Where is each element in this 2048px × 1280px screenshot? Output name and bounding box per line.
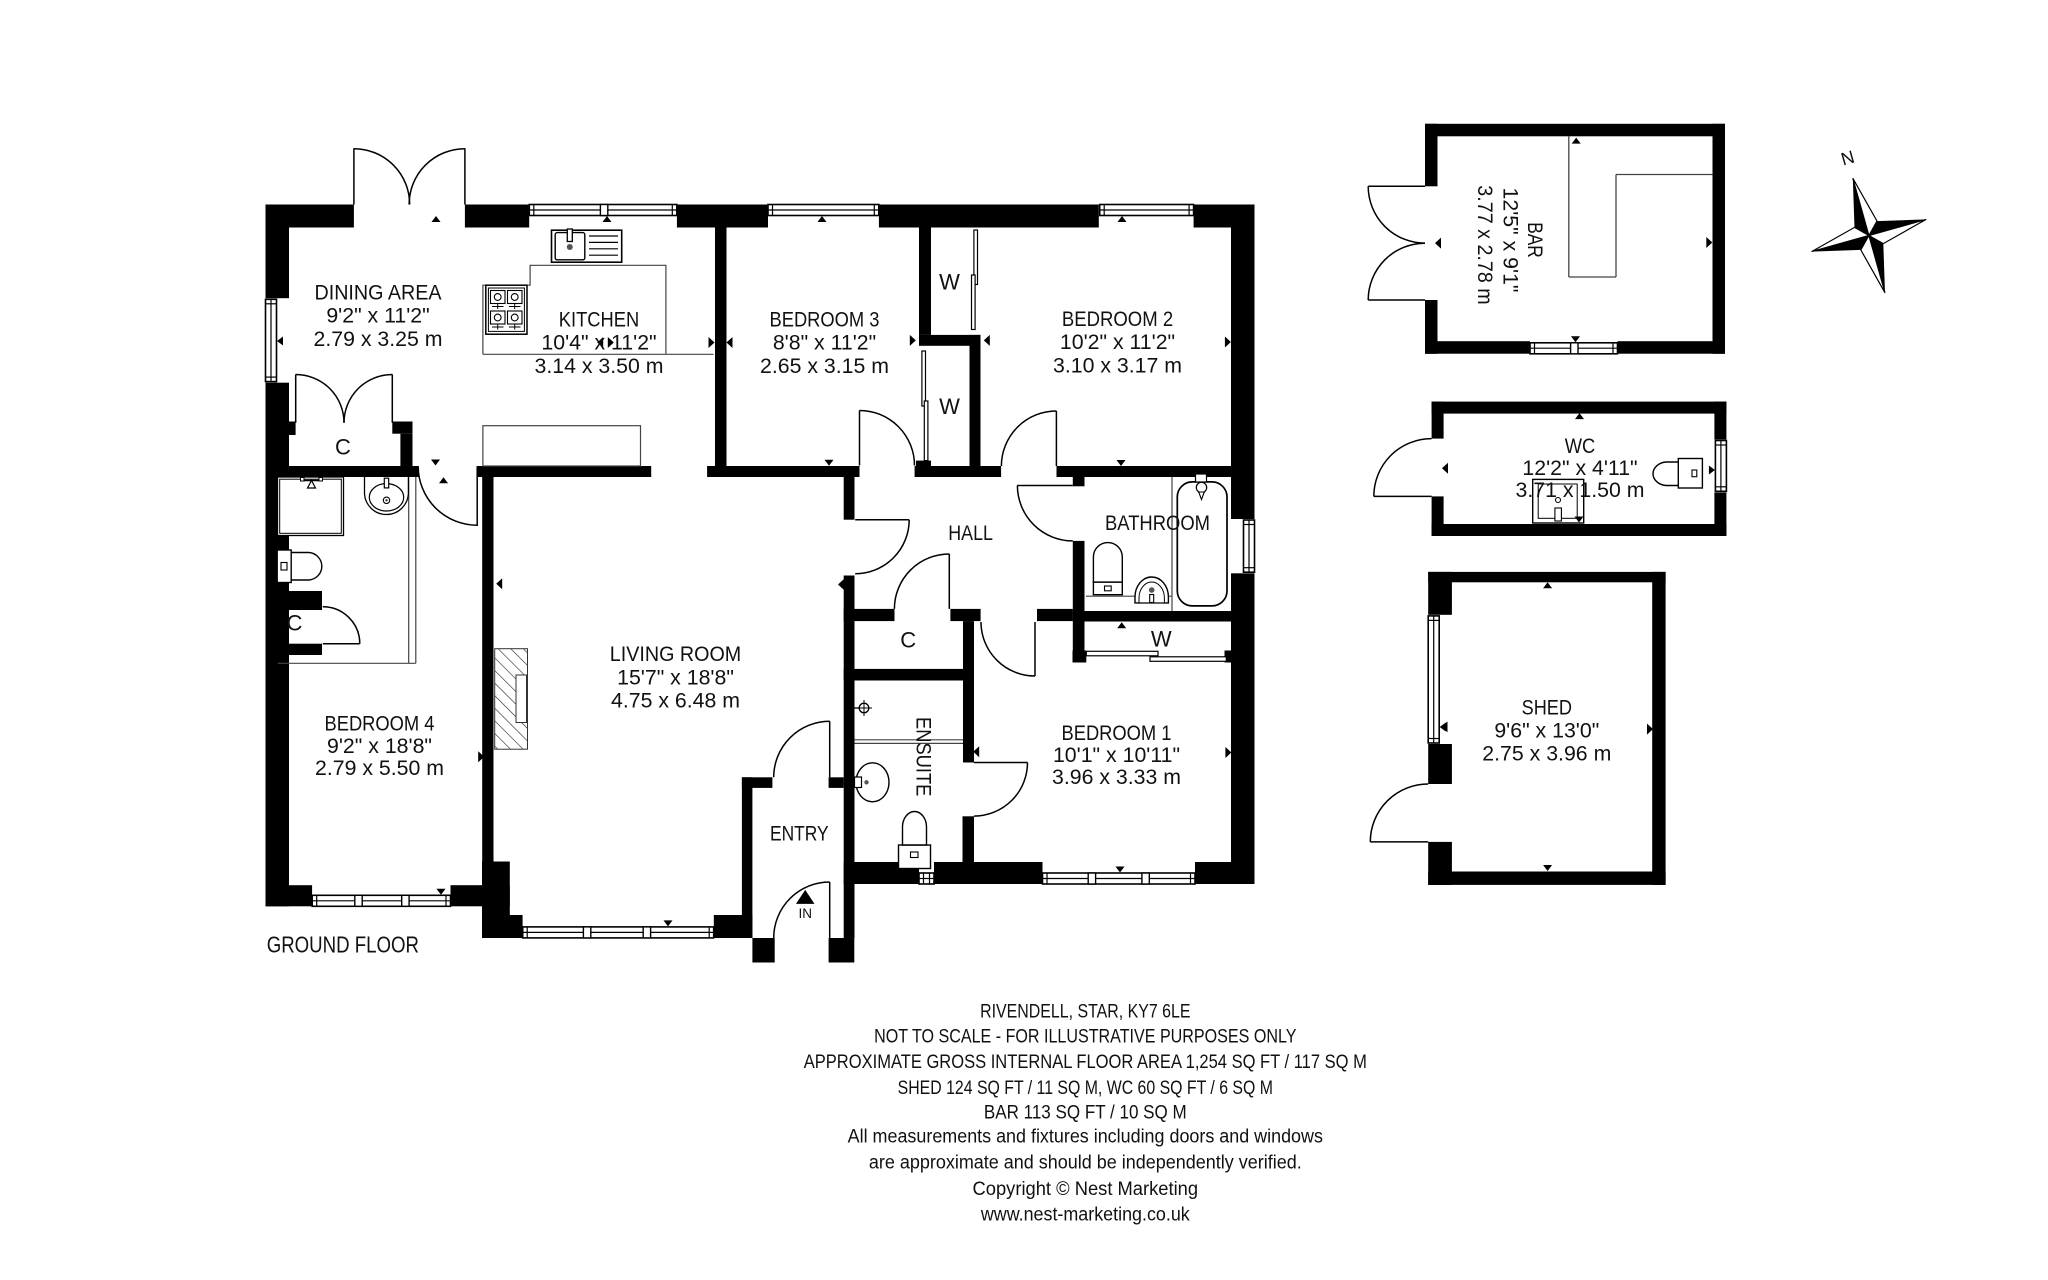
svg-text:ENSUITE: ENSUITE <box>912 717 936 796</box>
svg-text:C: C <box>287 611 303 636</box>
svg-text:15'7" x 18'8": 15'7" x 18'8" <box>617 665 734 689</box>
svg-text:C: C <box>900 628 916 653</box>
svg-text:12'5" x 9'1": 12'5" x 9'1" <box>1499 188 1523 293</box>
svg-text:SHED 124 SQ FT / 11 SQ M, WC 6: SHED 124 SQ FT / 11 SQ M, WC 60 SQ FT / … <box>898 1077 1273 1099</box>
svg-text:BEDROOM 4: BEDROOM 4 <box>325 712 435 736</box>
svg-text:BEDROOM 3: BEDROOM 3 <box>770 307 880 331</box>
svg-text:DINING AREA: DINING AREA <box>315 280 443 304</box>
svg-text:BAR 113 SQ FT / 10 SQ M: BAR 113 SQ FT / 10 SQ M <box>984 1102 1187 1124</box>
svg-text:SHED: SHED <box>1522 695 1572 719</box>
svg-text:4.75 x 6.48 m: 4.75 x 6.48 m <box>611 689 740 713</box>
svg-text:9'2" x 18'8": 9'2" x 18'8" <box>327 734 432 758</box>
svg-text:10'2" x 11'2": 10'2" x 11'2" <box>1060 330 1175 354</box>
svg-text:10'4" x 11'2": 10'4" x 11'2" <box>541 331 656 355</box>
svg-text:W: W <box>1151 626 1172 651</box>
svg-text:BATHROOM: BATHROOM <box>1105 511 1210 535</box>
svg-text:2.75 x 3.96 m: 2.75 x 3.96 m <box>1482 741 1611 765</box>
svg-text:9'6" x 13'0": 9'6" x 13'0" <box>1494 718 1599 742</box>
svg-text:BEDROOM 1: BEDROOM 1 <box>1062 721 1172 745</box>
svg-text:GROUND FLOOR: GROUND FLOOR <box>267 932 419 958</box>
svg-text:9'2" x 11'2": 9'2" x 11'2" <box>326 304 429 328</box>
svg-text:NOT TO SCALE - FOR ILLUSTRATIV: NOT TO SCALE - FOR ILLUSTRATIVE PURPOSES… <box>874 1025 1296 1047</box>
svg-text:8'8" x 11'2": 8'8" x 11'2" <box>773 331 876 355</box>
svg-text:W: W <box>939 269 960 294</box>
svg-text:All measurements and fixtures: All measurements and fixtures including … <box>848 1126 1323 1148</box>
svg-text:RIVENDELL, STAR, KY7 6LE: RIVENDELL, STAR, KY7 6LE <box>980 1000 1190 1022</box>
svg-text:IN: IN <box>798 906 812 921</box>
svg-text:12'2" x 4'11": 12'2" x 4'11" <box>1522 456 1637 480</box>
svg-text:APPROXIMATE GROSS INTERNAL FLO: APPROXIMATE GROSS INTERNAL FLOOR AREA 1,… <box>804 1051 1367 1073</box>
svg-text:HALL: HALL <box>948 521 993 545</box>
svg-text:3.71 x 1.50 m: 3.71 x 1.50 m <box>1515 478 1644 502</box>
svg-text:WC: WC <box>1565 434 1596 458</box>
svg-text:W: W <box>939 394 960 419</box>
svg-text:are approximate and should be: are approximate and should be independen… <box>869 1151 1302 1173</box>
svg-text:3.10 x 3.17 m: 3.10 x 3.17 m <box>1053 353 1182 377</box>
svg-text:3.77 x 2.78 m: 3.77 x 2.78 m <box>1473 185 1497 304</box>
svg-text:2.79 x 3.25 m: 2.79 x 3.25 m <box>313 327 442 351</box>
svg-text:BAR: BAR <box>1523 222 1547 258</box>
svg-text:BEDROOM 2: BEDROOM 2 <box>1062 307 1173 331</box>
svg-text:3.96 x 3.33 m: 3.96 x 3.33 m <box>1052 765 1181 789</box>
svg-text:KITCHEN: KITCHEN <box>559 307 639 331</box>
svg-text:10'1" x 10'11": 10'1" x 10'11" <box>1053 743 1180 767</box>
svg-text:C: C <box>335 435 351 460</box>
svg-text:Copyright © Nest Marketing: Copyright © Nest Marketing <box>973 1178 1199 1200</box>
svg-text:ENTRY: ENTRY <box>770 822 829 846</box>
svg-text:2.79 x 5.50 m: 2.79 x 5.50 m <box>315 756 444 780</box>
svg-text:3.14 x 3.50 m: 3.14 x 3.50 m <box>534 354 663 378</box>
svg-text:LIVING ROOM: LIVING ROOM <box>610 642 741 666</box>
svg-text:www.nest-marketing.co.uk: www.nest-marketing.co.uk <box>980 1204 1190 1226</box>
svg-text:2.65 x 3.15 m: 2.65 x 3.15 m <box>760 354 889 378</box>
